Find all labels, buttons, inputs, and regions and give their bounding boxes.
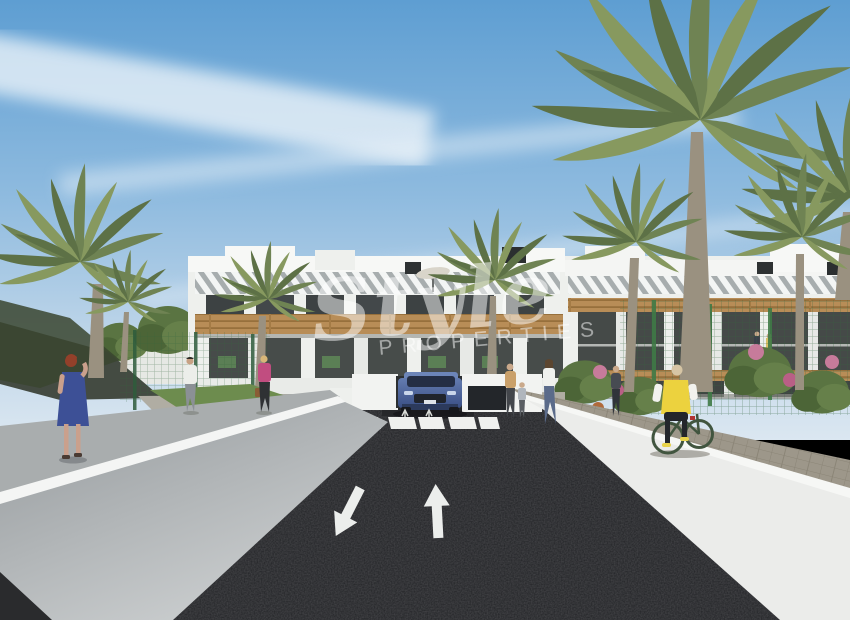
yellow-shoe — [680, 437, 689, 441]
palm-trunk — [795, 254, 804, 390]
render-image: Style PROPERTIES — [0, 0, 850, 620]
car-windshield — [407, 376, 455, 387]
rooftop-vent — [757, 262, 773, 274]
cyclist-head — [672, 365, 683, 376]
yellow-vest — [661, 380, 691, 414]
garage-opening — [468, 386, 506, 410]
car-wheel — [449, 407, 459, 414]
scene-canvas — [0, 0, 850, 620]
car-headlight — [404, 391, 413, 395]
pink-flowers — [748, 344, 764, 360]
wood-pergola-band — [195, 314, 563, 334]
car-headlight — [447, 391, 456, 395]
pink-flowers — [783, 373, 797, 387]
yellow-shoe — [662, 443, 671, 447]
pink-flowers — [825, 355, 839, 369]
roof-box — [315, 250, 355, 270]
entrance-wall-left — [352, 374, 398, 410]
rear-light — [690, 416, 695, 420]
pink-flowers — [593, 365, 607, 379]
